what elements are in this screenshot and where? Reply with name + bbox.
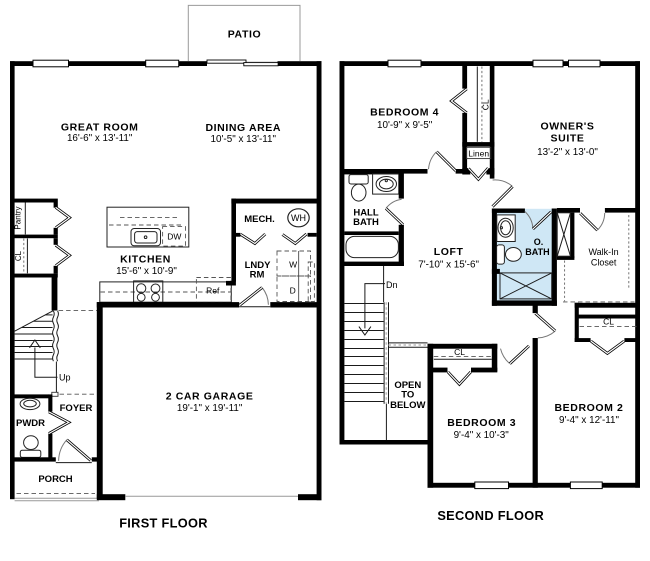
svg-text:Walk-In: Walk-In (589, 247, 619, 257)
svg-text:10'-9" x 9'-5": 10'-9" x 9'-5" (377, 120, 433, 131)
svg-text:9'-4" x 10'-3": 9'-4" x 10'-3" (454, 430, 510, 441)
svg-text:10'-5" x 13'-11": 10'-5" x 13'-11" (211, 134, 277, 145)
svg-text:2 CAR GARAGE: 2 CAR GARAGE (166, 390, 254, 402)
svg-text:CL: CL (481, 99, 491, 110)
svg-text:Ref: Ref (206, 286, 220, 296)
svg-text:PORCH: PORCH (38, 474, 72, 485)
svg-text:O.: O. (534, 237, 544, 247)
svg-text:W: W (289, 259, 297, 269)
svg-text:TO: TO (401, 389, 414, 400)
svg-text:BEDROOM 3: BEDROOM 3 (447, 417, 516, 429)
svg-text:16'-6" x 13'-11": 16'-6" x 13'-11" (67, 133, 133, 144)
svg-text:BATH: BATH (525, 247, 549, 257)
svg-text:7'-10" x 15'-6": 7'-10" x 15'-6" (418, 259, 479, 270)
svg-text:CL: CL (14, 250, 23, 261)
svg-text:Closet: Closet (591, 258, 617, 268)
svg-text:BEDROOM 4: BEDROOM 4 (370, 107, 439, 119)
svg-text:BEDROOM 2: BEDROOM 2 (555, 402, 624, 414)
svg-text:WH: WH (291, 213, 306, 223)
svg-text:BELOW: BELOW (390, 400, 425, 411)
svg-text:D: D (290, 285, 296, 295)
svg-text:RM: RM (250, 270, 265, 281)
svg-text:SUITE: SUITE (551, 133, 585, 145)
svg-text:MECH.: MECH. (244, 214, 275, 225)
svg-text:PATIO: PATIO (228, 29, 262, 41)
svg-text:9'-4" x 12'-11": 9'-4" x 12'-11" (559, 415, 619, 426)
svg-text:GREAT ROOM: GREAT ROOM (61, 122, 139, 134)
svg-text:DINING AREA: DINING AREA (205, 122, 281, 134)
svg-text:CL: CL (454, 347, 465, 357)
svg-text:Pantry: Pantry (13, 206, 22, 229)
svg-text:Dn: Dn (386, 280, 398, 290)
svg-text:BATH: BATH (353, 217, 379, 228)
svg-text:LOFT: LOFT (434, 246, 464, 258)
svg-text:19'-1" x 19'-11": 19'-1" x 19'-11" (177, 403, 243, 414)
svg-text:SECOND FLOOR: SECOND FLOOR (437, 508, 544, 523)
svg-text:DW: DW (167, 232, 181, 242)
svg-text:KITCHEN: KITCHEN (120, 254, 171, 266)
svg-text:Up: Up (59, 373, 71, 383)
svg-text:PWDR: PWDR (16, 418, 45, 429)
svg-text:OWNER'S: OWNER'S (541, 121, 595, 133)
svg-text:FOYER: FOYER (60, 403, 93, 414)
svg-text:CL: CL (603, 317, 614, 327)
svg-text:15'-6" x 10'-9": 15'-6" x 10'-9" (116, 266, 177, 277)
svg-text:FIRST FLOOR: FIRST FLOOR (119, 516, 208, 531)
svg-text:13'-2" x 13'-0": 13'-2" x 13'-0" (537, 147, 598, 158)
svg-text:Linen: Linen (468, 148, 489, 158)
